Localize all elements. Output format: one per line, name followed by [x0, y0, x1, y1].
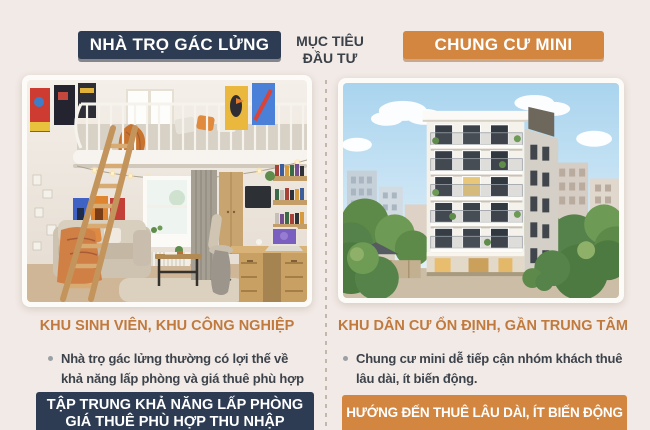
left-footer-line-1: TẬP TRUNG KHẢ NĂNG LẤP PHÒNG	[36, 397, 314, 414]
roof-slab	[423, 111, 529, 120]
building-illustration	[343, 83, 619, 298]
infographic-canvas: NHÀ TRỌ GÁC LỬNG MỤC TIÊU ĐẦU TƯ CHUNG C…	[0, 0, 650, 430]
left-section-heading: KHU SINH VIÊN, KHU CÔNG NGHIỆP	[22, 318, 312, 334]
left-bullet-item: Nhà trọ gác lửng thường có lợi thế về kh…	[48, 349, 310, 388]
wall-monitor	[245, 186, 271, 208]
loft-room-illustration	[27, 80, 307, 302]
wardrobe	[219, 172, 243, 254]
right-bullet-item: Chung cư mini dễ tiếp cận nhóm khách thu…	[343, 349, 626, 388]
left-footer-banner: TẬP TRUNG KHẢ NĂNG LẤP PHÒNG GIÁ THUÊ PH…	[36, 392, 314, 430]
left-header-badge: NHÀ TRỌ GÁC LỬNG	[78, 31, 281, 59]
objective-line-1: MỤC TIÊU	[285, 33, 375, 50]
floor-rows	[431, 125, 523, 254]
right-header-badge: CHUNG CƯ MINI	[403, 31, 604, 59]
center-dashed-divider	[325, 80, 327, 430]
investment-objective-label: MỤC TIÊU ĐẦU TƯ	[285, 33, 375, 67]
left-footer-line-2: GIÁ THUÊ PHÙ HỢP THU NHẬP	[36, 414, 314, 430]
left-bullet-text: Nhà trọ gác lửng thường có lợi thế về kh…	[61, 349, 310, 388]
right-footer-banner: HƯỚNG ĐẾN THUÊ LÂU DÀI, ÍT BIẾN ĐỘNG	[342, 395, 627, 430]
right-bullet-text: Chung cư mini dễ tiếp cận nhóm khách thu…	[356, 349, 626, 388]
loft-room-photo	[22, 75, 312, 307]
right-section-heading: KHU DÂN CƯ ỔN ĐỊNH, GẦN TRUNG TÂM	[338, 318, 624, 334]
bullet-dot-icon	[343, 356, 348, 361]
hanging-clothes	[211, 250, 231, 295]
bullet-dot-icon	[48, 356, 53, 361]
objective-line-2: ĐẦU TƯ	[285, 50, 375, 67]
mini-apartment-photo	[338, 78, 624, 303]
